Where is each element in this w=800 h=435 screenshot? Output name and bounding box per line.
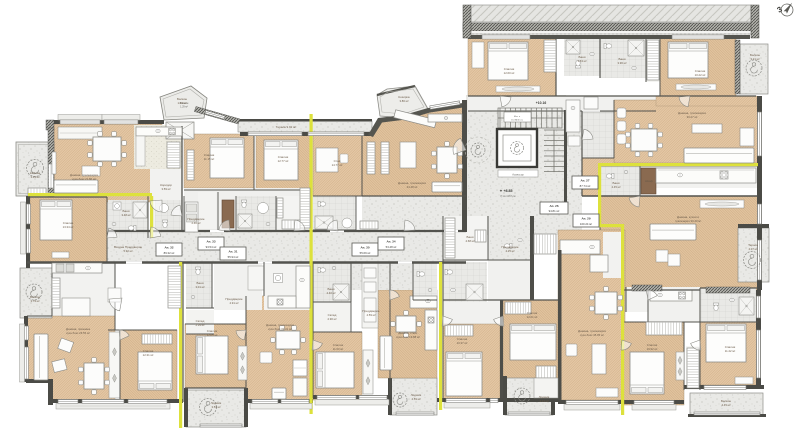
svg-text:кухн.бокс 19.88 м²: кухн.бокс 19.88 м² — [396, 335, 420, 339]
svg-text:кухн.бокс 21.80 м²: кухн.бокс 21.80 м² — [72, 177, 96, 181]
svg-text:53.48 м²: 53.48 м² — [386, 245, 397, 249]
svg-text:Ап. 29: Ап. 29 — [582, 216, 591, 220]
svg-text:93.54 м²: 93.54 м² — [206, 245, 217, 249]
svg-text:87.74 м²: 87.74 м² — [580, 184, 591, 188]
svg-text:Н св =267 см: Н св =267 см — [500, 195, 515, 198]
svg-text:10.37 м²: 10.37 м² — [457, 341, 468, 345]
svg-text:4.59 м²: 4.59 м² — [366, 313, 375, 317]
svg-text:94.81 м²: 94.81 м² — [549, 209, 560, 213]
svg-text:4.40 м²: 4.40 м² — [326, 291, 335, 295]
svg-text:2.90 м²: 2.90 м² — [327, 317, 336, 321]
svg-text:Ап. 33: Ап. 33 — [207, 239, 216, 243]
svg-text:16.39|30 см: 16.39|30 см — [511, 120, 523, 122]
svg-text:89.32 м²: 89.32 м² — [164, 251, 175, 255]
svg-text:3.49 м²: 3.49 м² — [30, 175, 39, 179]
svg-text:Ап. 26: Ап. 26 — [550, 204, 559, 208]
svg-text:Ап. 32: Ап. 32 — [165, 245, 174, 249]
svg-text:12.05 м²: 12.05 м² — [207, 333, 218, 337]
svg-text:100.24 м²: 100.24 м² — [580, 222, 592, 226]
svg-text:4.45 м²: 4.45 м² — [611, 185, 620, 189]
svg-text:кухн.бокс 26.55 м²: кухн.бокс 26.55 м² — [66, 331, 90, 335]
svg-text:4.68 м²: 4.68 м² — [465, 239, 474, 243]
svg-text:2.46 м²: 2.46 м² — [191, 221, 200, 225]
svg-text:1.29 м²: 1.29 м² — [177, 101, 186, 105]
svg-text:3.86 м²: 3.86 м² — [399, 99, 408, 103]
svg-text:12.01 м²: 12.01 м² — [527, 315, 538, 319]
svg-text:3.48 м²: 3.48 м² — [121, 213, 130, 217]
svg-text:3.54 м²: 3.54 м² — [211, 405, 220, 409]
svg-text:12.31 м²: 12.31 м² — [143, 353, 154, 357]
svg-text:4.07 м²: 4.07 м² — [748, 247, 757, 251]
svg-text:11.03 м²: 11.03 м² — [333, 347, 343, 351]
svg-text:3.21 м²: 3.21 м² — [750, 57, 759, 61]
svg-text:12.77 м²: 12.77 м² — [278, 159, 289, 163]
svg-text:55.69 м²: 55.69 м² — [360, 251, 371, 255]
svg-text:3.79 м²: 3.79 м² — [30, 299, 39, 303]
svg-text:3.63 м²: 3.63 м² — [577, 59, 586, 63]
svg-text:кухн.бокс 45.05 м²: кухн.бокс 45.05 м² — [580, 333, 604, 337]
svg-text:+10.16: +10.16 — [536, 101, 547, 105]
svg-text:4.59 м²: 4.59 м² — [411, 397, 420, 401]
svg-text:трапезария 30.40 м²: трапезария 30.40 м² — [675, 219, 701, 223]
svg-text:Ап. 31: Ап. 31 — [229, 249, 238, 253]
svg-text:30.27 м²: 30.27 м² — [687, 115, 698, 119]
svg-text:14.77 м²: 14.77 м² — [332, 163, 343, 167]
svg-text:4.13 м²: 4.13 м² — [539, 399, 548, 403]
svg-text:1.29 м²: 1.29 м² — [180, 106, 188, 109]
svg-text:5.92 м²: 5.92 м² — [123, 249, 132, 253]
svg-text:Ап. 34: Ап. 34 — [387, 239, 396, 243]
svg-text:кухн.бокс 32.41 м²: кухн.бокс 32.41 м² — [268, 327, 292, 331]
svg-text:4.25 м²: 4.25 м² — [505, 249, 514, 253]
svg-text:3.59 м²: 3.59 м² — [161, 187, 170, 191]
svg-text:10.92 м²: 10.92 м² — [647, 347, 658, 351]
svg-text:10.22 м²: 10.22 м² — [695, 73, 706, 77]
svg-text:2.39 м²: 2.39 м² — [195, 323, 204, 327]
svg-text:✦ +8.85: ✦ +8.85 — [499, 189, 512, 193]
svg-text:Ап. 30: Ап. 30 — [361, 245, 370, 249]
svg-text:Ап. 27: Ап. 27 — [581, 178, 590, 182]
svg-text:Шкаф: Шкаф — [645, 179, 654, 183]
svg-text:Мет. а: Мет. а — [514, 116, 521, 118]
svg-text:55.94 м²: 55.94 м² — [228, 255, 239, 259]
svg-text:4.91 м²: 4.91 м² — [229, 301, 238, 305]
svg-text:3.96 м²: 3.96 м² — [617, 61, 626, 65]
svg-text:Тераса 9.92 м²: Тераса 9.92 м² — [276, 125, 296, 129]
svg-text:44.48 м²: 44.48 м² — [407, 185, 418, 189]
svg-text:13.34 м²: 13.34 м² — [63, 225, 74, 229]
svg-text:Асансьор: Асансьор — [512, 172, 524, 176]
svg-text:11.22 м²: 11.22 м² — [725, 349, 735, 353]
svg-text:11.15 м²: 11.15 м² — [204, 157, 214, 161]
svg-text:12.60 м²: 12.60 м² — [504, 71, 515, 75]
svg-text:4.45 м²: 4.45 м² — [721, 403, 730, 407]
svg-text:3.01 м²: 3.01 м² — [195, 285, 204, 289]
